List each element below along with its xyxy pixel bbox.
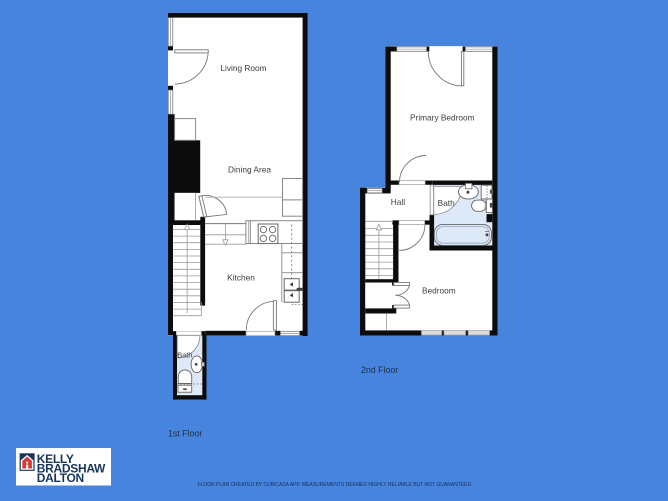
- svg-text:1st Floor: 1st Floor: [168, 428, 202, 438]
- svg-text:Dining Area: Dining Area: [228, 165, 271, 175]
- svg-text:Bath: Bath: [177, 351, 192, 360]
- svg-text:Kitchen: Kitchen: [227, 273, 255, 283]
- svg-text:Bath: Bath: [438, 198, 455, 208]
- svg-text:Bedroom: Bedroom: [422, 286, 456, 296]
- svg-text:2nd Floor: 2nd Floor: [361, 365, 398, 375]
- svg-text:Primary Bedroom: Primary Bedroom: [410, 113, 475, 123]
- svg-text:DALTON: DALTON: [37, 471, 84, 485]
- svg-text:Living Room: Living Room: [220, 63, 266, 73]
- svg-text:Hall: Hall: [391, 197, 405, 207]
- svg-text:FLOOR PLAN CREATED BY CUBICASA: FLOOR PLAN CREATED BY CUBICASA APP. MEAS…: [198, 482, 473, 488]
